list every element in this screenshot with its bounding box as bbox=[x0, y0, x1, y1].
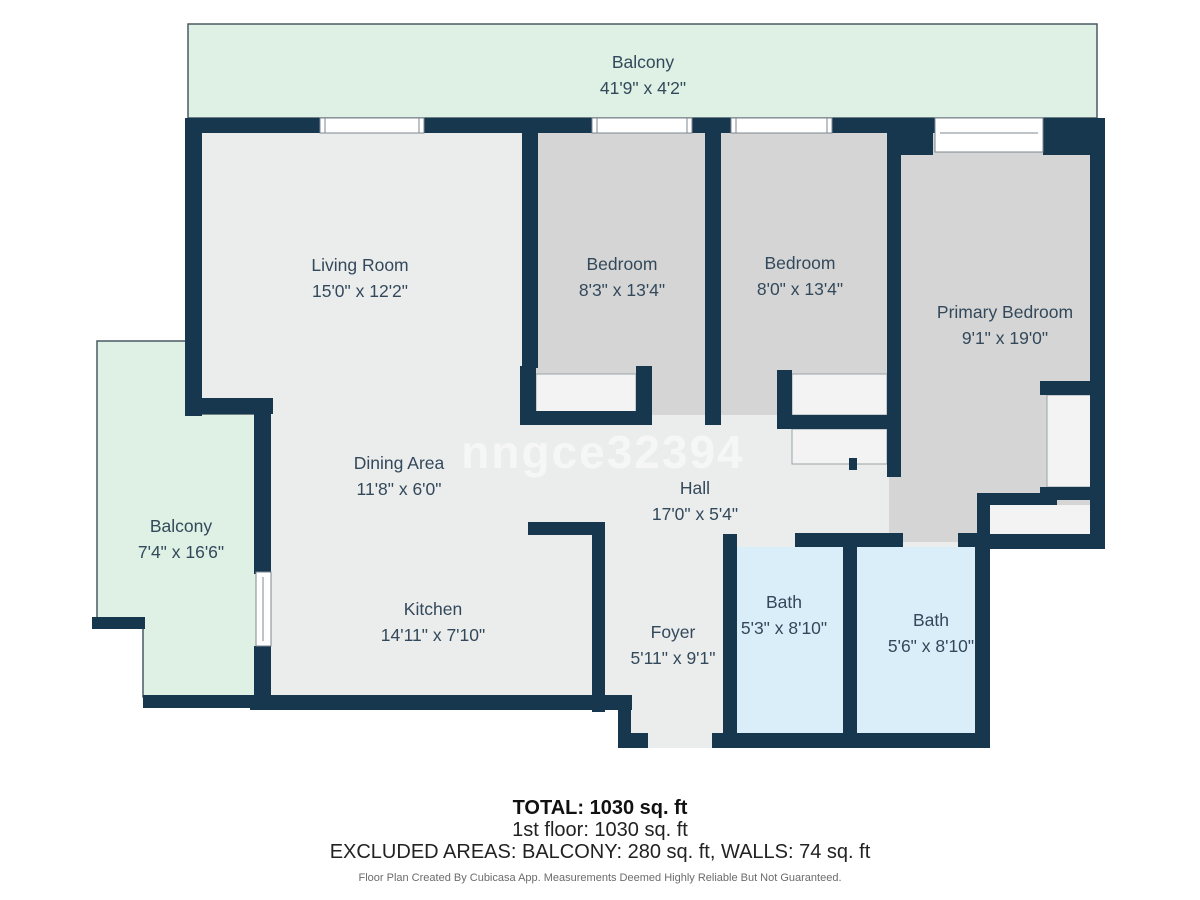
room-label-foyer: Foyer 5'11" x 9'1" bbox=[631, 619, 716, 671]
disclaimer: Floor Plan Created By Cubicasa App. Meas… bbox=[0, 872, 1200, 885]
first-floor-area: 1st floor: 1030 sq. ft bbox=[0, 819, 1200, 841]
total-area: TOTAL: 1030 sq. ft bbox=[0, 797, 1200, 819]
bath1-floor bbox=[737, 547, 843, 737]
watermark: nngce32394 bbox=[461, 425, 744, 479]
room-label-living-room: Living Room 15'0" x 12'2" bbox=[311, 252, 408, 304]
excluded-areas: EXCLUDED AREAS: BALCONY: 280 sq. ft, WAL… bbox=[0, 841, 1200, 863]
room-label-dining-area: Dining Area 11'8" x 6'0" bbox=[354, 450, 444, 502]
room-label-kitchen: Kitchen 14'11" x 7'10" bbox=[381, 596, 485, 648]
area-summary: TOTAL: 1030 sq. ft 1st floor: 1030 sq. f… bbox=[0, 797, 1200, 885]
room-label-hall: Hall 17'0" x 5'4" bbox=[652, 475, 738, 527]
room-label-bedroom2: Bedroom 8'0" x 13'4" bbox=[757, 250, 843, 302]
room-label-bath2: Bath 5'6" x 8'10" bbox=[888, 607, 974, 659]
room-label-bath1: Bath 5'3" x 8'10" bbox=[741, 589, 827, 641]
room-label-balcony-left: Balcony 7'4" x 16'6" bbox=[138, 513, 224, 565]
room-label-bedroom1: Bedroom 8'3" x 13'4" bbox=[579, 251, 665, 303]
floor-plan-page: nngce32394 Balcony 41'9" x 4'2" Living R… bbox=[0, 0, 1200, 900]
room-label-balcony-top: Balcony 41'9" x 4'2" bbox=[600, 49, 686, 101]
room-label-primary-bedroom: Primary Bedroom 9'1" x 19'0" bbox=[937, 299, 1073, 351]
